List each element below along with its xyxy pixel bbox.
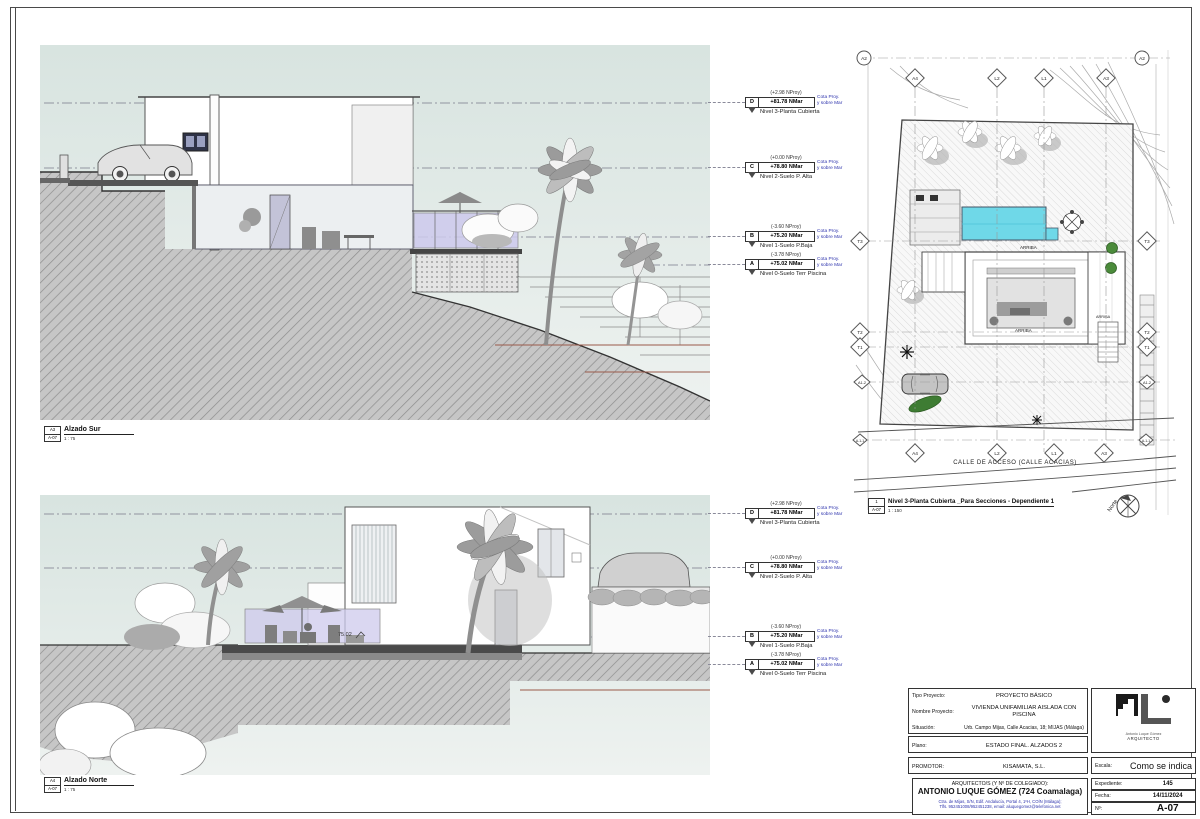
escala-box: Escala: Como se indica xyxy=(1091,757,1196,774)
level-cota-note: Cota Proy.y sobre Mar xyxy=(817,506,842,518)
arriba-label-pool: ARRIBA xyxy=(1020,245,1037,250)
view-name: Nivel 3-Planta Cubierta _Para Secciones … xyxy=(888,498,1054,507)
grid-label: L1 xyxy=(1041,76,1047,82)
gabion-wall xyxy=(416,254,518,292)
view-tag: 1A-07 xyxy=(868,498,885,514)
north-arrow-icon xyxy=(1117,495,1139,517)
plano-box: Plano: ESTADO FINAL. ALZADOS 2 xyxy=(908,736,1088,753)
green-tree xyxy=(1106,263,1117,274)
leader-line xyxy=(708,102,745,103)
grid-label: T2 xyxy=(1144,330,1150,335)
level-cota-note: Cota Proy.y sobre Mar xyxy=(817,560,842,572)
elevation-north-view: 75.02 xyxy=(40,495,710,775)
level-marker-c: (+0.00 NProy) C +78.80 NMar Cota Proy.y … xyxy=(708,555,883,589)
grid-label: L2 xyxy=(994,451,1000,457)
level-nproy: (-3.78 NProy) xyxy=(758,652,814,658)
level-cota-note: Cota Proy.y sobre Mar xyxy=(817,160,842,172)
level-name: Nivel 1-Suelo P.Baja xyxy=(760,243,812,249)
plano-label: Plano: xyxy=(912,743,964,749)
pool xyxy=(962,207,1058,240)
level-value: +78.80 NMar xyxy=(758,562,815,573)
grid-marker-a3-bottom: A3 xyxy=(1095,444,1113,462)
view-name: Alzado Sur xyxy=(64,426,134,435)
level-name: Nivel 0-Suelo Terr Piscina xyxy=(760,671,826,677)
grid-label: T3 xyxy=(857,239,863,244)
grid-label: A1-2 xyxy=(858,381,866,385)
situacion-value: Urb. Campo Mijas, Calle Acacias, 18; MIJ… xyxy=(964,725,1084,731)
spot-elevation-value: 75.02 xyxy=(338,632,352,638)
view-title-planta: 1A-07 Nivel 3-Planta Cubierta _Para Secc… xyxy=(868,498,1054,514)
level-nproy: (+0.00 NProy) xyxy=(758,555,814,561)
plano-value: ESTADO FINAL. ALZADOS 2 xyxy=(964,743,1084,749)
view-title-alzado-norte: A4A-07 Alzado Norte 1 : 75 xyxy=(44,777,134,793)
view-tag: A3A-07 xyxy=(44,426,61,442)
level-value: +78.80 NMar xyxy=(758,162,815,173)
level-marker-a: (-3.78 NProy) A +75.02 NMar Cota Proy.y … xyxy=(708,652,883,686)
grid-marker-t3-left: T3 xyxy=(851,232,869,250)
grid-label: T1 xyxy=(857,345,863,350)
level-cota-note: Cota Proy.y sobre Mar xyxy=(817,257,842,269)
level-symbol-icon xyxy=(748,269,756,275)
view-tag: A4A-07 xyxy=(44,777,61,793)
architect-logo-icon xyxy=(1092,692,1195,732)
sheet-number-label: Nº: xyxy=(1095,806,1144,812)
leader-line xyxy=(708,513,745,514)
arquitecto-name: ANTONIO LUQUE GÓMEZ (724 Coamalaga) xyxy=(913,787,1087,796)
level-symbol-icon xyxy=(748,172,756,178)
site-plan-view: ARRIBA ARRIBA ARRIBA xyxy=(850,40,1180,525)
grid-label: A3 xyxy=(1101,451,1107,457)
grid-marker-t3-right: T3 xyxy=(1138,232,1156,250)
expediente-value: 145 xyxy=(1144,781,1193,787)
level-symbol-icon xyxy=(748,518,756,524)
level-cota-note: Cota Proy.y sobre Mar xyxy=(817,95,842,107)
view-scale: 1 : 75 xyxy=(64,436,134,441)
view-scale: 1 : 75 xyxy=(64,787,134,792)
grid-label: T2 xyxy=(857,330,863,335)
elevation-south-view xyxy=(40,45,710,420)
grid-label: T3 xyxy=(1144,239,1150,244)
level-nproy: (-3.60 NProy) xyxy=(758,624,814,630)
escala-value: Como se indica xyxy=(1130,761,1192,771)
level-value: +75.02 NMar xyxy=(758,259,815,270)
grid-label: A4 xyxy=(912,451,918,457)
logo-box: Antonio Luque Gómez ARQUITECTO xyxy=(1091,688,1196,753)
sheet-number-box: Nº: A-07 xyxy=(1091,802,1196,815)
grid-marker-a2-right: A2 xyxy=(1135,51,1149,65)
level-value: +75.02 NMar xyxy=(758,659,815,670)
fecha-box: Fecha: 14/11/2024 xyxy=(1091,790,1196,802)
level-nproy: (+0.00 NProy) xyxy=(758,155,814,161)
level-cota-note: Cota Proy.y sobre Mar xyxy=(817,657,842,669)
grid-label: A2 xyxy=(861,56,867,62)
green-tree xyxy=(1107,243,1118,254)
level-symbol-icon xyxy=(748,107,756,113)
level-nproy: (+2.98 NProy) xyxy=(758,501,814,507)
level-name: Nivel 1-Suelo P.Baja xyxy=(760,643,812,649)
promotor-box: PROMOTOR: KISAMATA, S.L. xyxy=(908,757,1088,774)
grid-marker-a4-bottom: A4 xyxy=(906,444,924,462)
level-name: Nivel 2-Suelo P. Alta xyxy=(760,574,812,580)
grid-label: T1 xyxy=(1144,345,1150,350)
nombre-proyecto-label: Nombre Proyecto: xyxy=(912,709,964,715)
grid-label: A-1-1 xyxy=(1142,439,1150,443)
leader-line xyxy=(708,664,745,665)
level-name: Nivel 0-Suelo Terr Piscina xyxy=(760,271,826,277)
logo-architect-title: ARQUITECTO xyxy=(1092,737,1195,742)
level-value: +81.78 NMar xyxy=(758,508,815,519)
level-value: +81.78 NMar xyxy=(758,97,815,108)
grid-label: A-1-1 xyxy=(856,439,864,443)
view-scale: 1 : 150 xyxy=(888,508,1054,513)
level-name: Nivel 3-Planta Cubierta xyxy=(760,109,820,115)
grid-label: A4 xyxy=(912,76,918,82)
level-nproy: (+2.98 NProy) xyxy=(758,90,814,96)
sheet-binding-margin xyxy=(15,7,16,811)
grid-label: A3 xyxy=(1103,76,1109,82)
level-symbol-icon xyxy=(748,572,756,578)
grid-label: L1 xyxy=(1051,451,1057,457)
expediente-label: Expediente: xyxy=(1095,781,1144,787)
arquitecto-address-line2: Tlfs. 952451008/952451238, email: aluque… xyxy=(913,804,1087,809)
grid-marker-t1-left: T1 xyxy=(851,338,869,356)
arquitecto-box: ARQUITECTO/S (Y Nº DE COLEGIADO): ANTONI… xyxy=(912,778,1088,815)
grid-marker-a4-top: A4 xyxy=(906,69,924,87)
level-value: +75.20 NMar xyxy=(758,631,815,642)
grid-label: A2 xyxy=(1139,56,1145,62)
fecha-value: 14/11/2024 xyxy=(1144,793,1193,799)
louver-window xyxy=(352,525,396,603)
leader-line xyxy=(708,567,745,568)
grid-marker-a11-left: A-1-1 xyxy=(853,434,867,446)
leader-line xyxy=(708,167,745,168)
view-name: Alzado Norte xyxy=(64,777,134,786)
level-name: Nivel 2-Suelo P. Alta xyxy=(760,174,812,180)
view-title-alzado-sur: A3A-07 Alzado Sur 1 : 75 xyxy=(44,426,134,442)
fecha-label: Fecha: xyxy=(1095,793,1144,799)
nombre-proyecto-value: VIVIENDA UNIFAMILIAR AISLADA CON PISCINA xyxy=(964,705,1084,718)
sheet-number-value: A-07 xyxy=(1144,803,1193,814)
promotor-value: KISAMATA, S.L. xyxy=(964,764,1084,770)
level-symbol-icon xyxy=(748,241,756,247)
level-symbol-icon xyxy=(748,669,756,675)
street-label: CALLE DE ACCESO (CALLE ACACIAS) xyxy=(953,460,1077,466)
car-top-view xyxy=(902,374,948,394)
arriba-label-stairs: ARRIBA xyxy=(1096,315,1111,319)
level-nproy: (-3.78 NProy) xyxy=(758,252,814,258)
grid-marker-a2-left: A2 xyxy=(857,51,871,65)
level-cota-note: Cota Proy.y sobre Mar xyxy=(817,629,842,641)
leader-line xyxy=(708,236,745,237)
expediente-box: Expediente: 145 xyxy=(1091,778,1196,790)
level-nproy: (-3.60 NProy) xyxy=(758,224,814,230)
level-symbol-icon xyxy=(748,641,756,647)
situacion-label: Situación: xyxy=(912,725,964,731)
tipo-proyecto-value: PROYECTO BÁSICO xyxy=(964,693,1084,699)
title-block: Tipo Proyecto: PROYECTO BÁSICO Nombre Pr… xyxy=(908,688,1196,815)
escala-label: Escala: xyxy=(1095,763,1130,769)
level-value: +75.20 NMar xyxy=(758,231,815,242)
leader-line xyxy=(708,264,745,265)
project-info-box: Tipo Proyecto: PROYECTO BÁSICO Nombre Pr… xyxy=(908,688,1088,734)
level-cota-note: Cota Proy.y sobre Mar xyxy=(817,229,842,241)
promotor-label: PROMOTOR: xyxy=(912,764,964,770)
grid-marker-l1-top: L1 xyxy=(1035,69,1053,87)
grid-label: A1-2 xyxy=(1143,381,1151,385)
level-name: Nivel 3-Planta Cubierta xyxy=(760,520,820,526)
terrain-below-terrace xyxy=(238,681,510,725)
leader-line xyxy=(708,636,745,637)
terrace-slab xyxy=(222,645,522,653)
grid-marker-l2-top: L2 xyxy=(988,69,1006,87)
drawing-sheet: 75.02 (+2.98 NProy) D +81.78 NMar Cota P… xyxy=(0,0,1200,819)
tipo-proyecto-label: Tipo Proyecto: xyxy=(912,693,964,699)
grid-label: L2 xyxy=(994,76,1000,82)
pergola-deck xyxy=(910,190,960,245)
stone-path xyxy=(1140,295,1154,445)
